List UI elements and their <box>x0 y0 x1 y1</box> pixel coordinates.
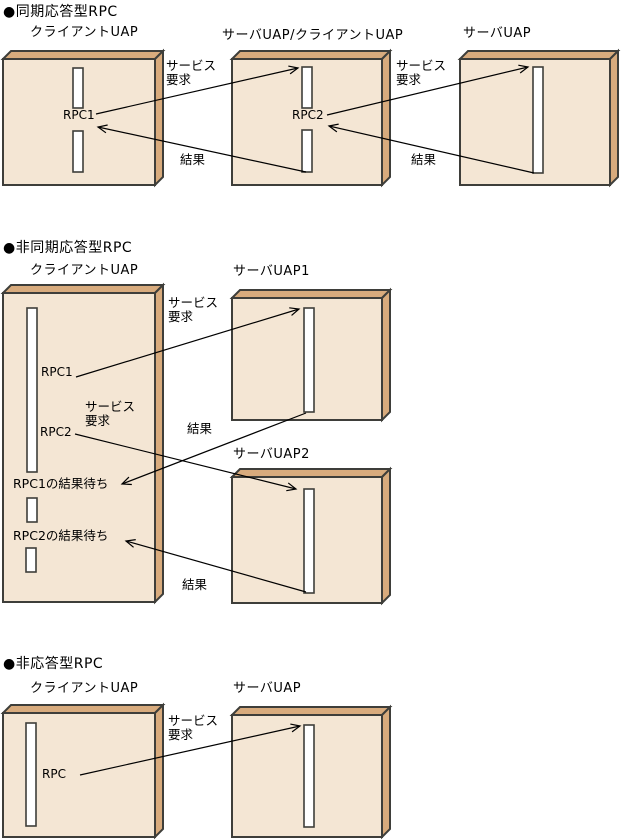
box-right-bevel <box>155 705 163 837</box>
slot <box>302 130 312 172</box>
section-heading-async: ●非同期応答型RPC <box>3 241 132 256</box>
service-request-label: サービス 要求 <box>396 59 446 87</box>
service-request-line2: 要求 <box>396 73 446 87</box>
service-request-line1: サービス <box>168 714 218 728</box>
box-title-sync-server: サーバUAP <box>463 27 531 41</box>
box-top-bevel <box>232 707 390 715</box>
service-request-label: サービス 要求 <box>168 296 218 324</box>
box-right-bevel <box>382 51 390 185</box>
slot <box>27 308 37 472</box>
service-request-line2: 要求 <box>85 414 135 428</box>
service-request-label: サービス 要求 <box>166 59 216 87</box>
box-title-async-server2: サーバUAP2 <box>233 448 310 462</box>
box-right-bevel <box>382 290 390 420</box>
async-server-uap1-box <box>232 290 390 420</box>
slot <box>27 498 37 522</box>
box-title-sync-client: クライアントUAP <box>30 26 138 40</box>
service-request-line1: サービス <box>168 296 218 310</box>
result-label: 結果 <box>187 422 212 436</box>
sync-server-uap-box <box>460 51 618 185</box>
slot <box>26 548 36 572</box>
slot <box>304 489 314 593</box>
rpc1-label: RPC1 <box>63 109 95 122</box>
service-request-line2: 要求 <box>168 728 218 742</box>
result-label: 結果 <box>182 578 207 592</box>
service-request-line1: サービス <box>396 59 446 73</box>
box-top-bevel <box>3 51 163 59</box>
box-top-bevel <box>232 469 390 477</box>
box-right-bevel <box>155 51 163 185</box>
slot <box>26 723 36 826</box>
async-server-uap2-box <box>232 469 390 603</box>
box-right-bevel <box>155 285 163 602</box>
slot <box>302 67 312 108</box>
box-right-bevel <box>610 51 618 185</box>
box-top-bevel <box>232 290 390 298</box>
result-label: 結果 <box>411 153 436 167</box>
rpc2-label: RPC2 <box>292 109 324 122</box>
rpc-diagram: ●同期応答型RPC クライアントUAP サーバUAP/クライアントUAP サーバ… <box>0 0 624 840</box>
noreply-server-uap-box <box>232 707 390 837</box>
box-right-bevel <box>382 469 390 603</box>
box-top-bevel <box>3 705 163 713</box>
service-request-label: サービス 要求 <box>168 714 218 742</box>
box-title-noreply-server: サーバUAP <box>233 682 301 696</box>
box-title-sync-middle: サーバUAP/クライアントUAP <box>222 29 403 43</box>
slot <box>533 67 543 173</box>
rpc1-wait-label: RPC1の結果待ち <box>13 477 108 491</box>
service-request-line2: 要求 <box>168 310 218 324</box>
result-label: 結果 <box>180 153 205 167</box>
slot <box>304 725 314 827</box>
section-heading-noreply: ●非応答型RPC <box>3 657 103 672</box>
service-request-line2: 要求 <box>166 73 216 87</box>
box-top-bevel <box>460 51 618 59</box>
box-right-bevel <box>382 707 390 837</box>
service-request-line1: サービス <box>166 59 216 73</box>
rpc-label: RPC <box>42 768 66 781</box>
box-title-async-server1: サーバUAP1 <box>233 265 310 279</box>
slot <box>73 68 83 108</box>
service-request-label: サービス 要求 <box>85 400 135 428</box>
box-title-async-client: クライアントUAP <box>30 264 138 278</box>
rpc1-label: RPC1 <box>41 366 73 379</box>
rpc2-label: RPC2 <box>40 426 72 439</box>
async-client-uap-box <box>3 285 163 602</box>
slot <box>304 308 314 412</box>
noreply-client-uap-box <box>3 705 163 837</box>
rpc2-wait-label: RPC2の結果待ち <box>13 529 108 543</box>
box-title-noreply-client: クライアントUAP <box>30 682 138 696</box>
service-request-line1: サービス <box>85 400 135 414</box>
section-heading-sync: ●同期応答型RPC <box>3 5 118 20</box>
box-top-bevel <box>3 285 163 293</box>
box-top-bevel <box>232 51 390 59</box>
slot <box>73 131 83 172</box>
